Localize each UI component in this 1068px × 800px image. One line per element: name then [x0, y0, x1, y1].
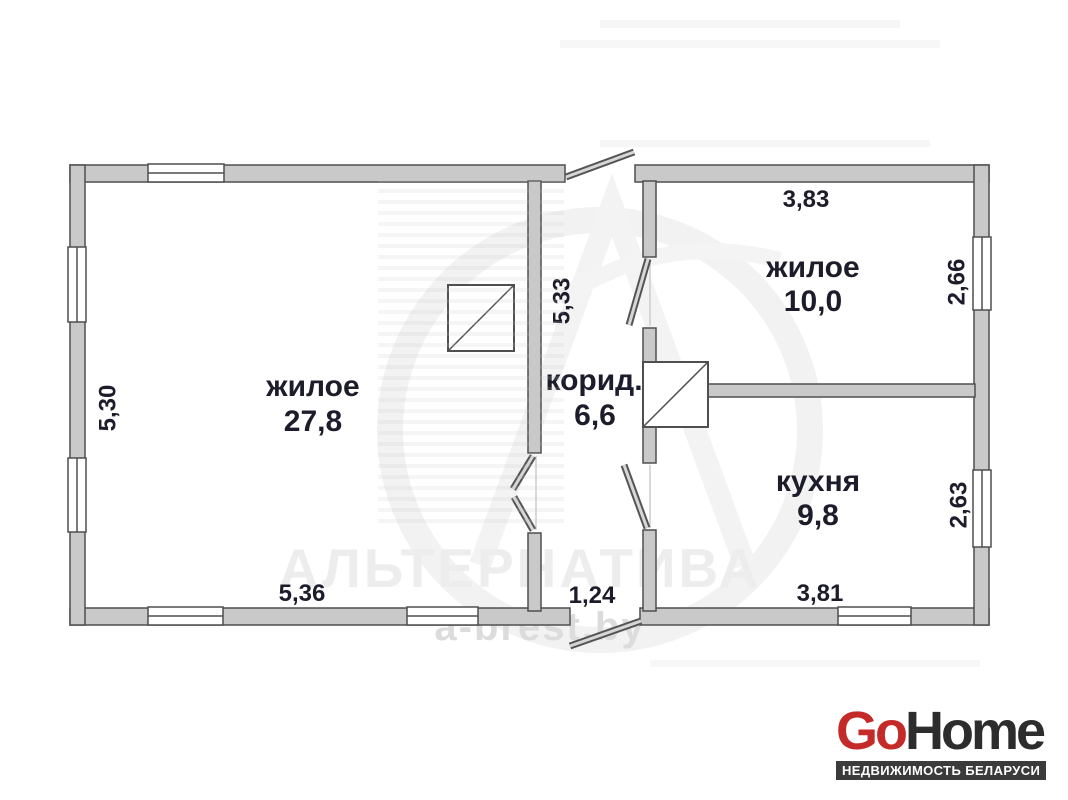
gohome-logo-text: GoHome [836, 704, 1046, 758]
wall-left [70, 165, 85, 625]
corridor-area: 6,6 [574, 399, 616, 432]
wall-bottom-left [70, 608, 570, 625]
scan-streak [600, 20, 900, 28]
dim-corridor-width: 1,24 [569, 582, 616, 609]
wall-corridor-right-2 [643, 328, 656, 363]
dim-kitchen-width: 3,81 [797, 580, 844, 607]
floor-plan-drawing: АЛЬТЕРНАТИВА a-brest.by [0, 0, 1068, 800]
door-leaf-fill [514, 497, 533, 530]
wall-corridor-right-3 [643, 427, 656, 463]
dim-corridor-height: 5,33 [548, 278, 575, 325]
dim-living-height: 5,30 [94, 385, 121, 432]
wall-corridor-right-4 [643, 530, 656, 611]
wall-right [974, 165, 989, 625]
gohome-logo: GoHome НЕДВИЖИМОСТЬ БЕЛАРУСИ [836, 704, 1046, 780]
dim-living-width: 5,36 [279, 580, 326, 607]
living-room-area: 27,8 [284, 405, 342, 438]
wall-bottom-right [640, 608, 989, 625]
dim-kitchen-height: 2,63 [945, 482, 972, 529]
corridor-name: корид. [545, 364, 642, 397]
walls [70, 165, 989, 625]
floorplan-page: АЛЬТЕРНАТИВА a-brest.by [0, 0, 1068, 800]
wall-corridor-right-1 [643, 181, 656, 257]
wall-room-kitchen-divider [705, 384, 975, 397]
room2-name: жилое [765, 251, 859, 284]
dim-room2-height: 2,66 [943, 259, 970, 306]
logo-home-text: Home [905, 701, 1043, 761]
scan-streak [560, 40, 940, 48]
living-room-name: жилое [265, 370, 359, 403]
room2-area: 10,0 [784, 285, 842, 318]
logo-go-text: Go [836, 701, 905, 761]
dim-room2-width: 3,83 [783, 186, 830, 213]
kitchen-area: 9,8 [797, 499, 839, 532]
logo-tagline: НЕДВИЖИМОСТЬ БЕЛАРУСИ [836, 761, 1046, 780]
kitchen-name: кухня [776, 465, 860, 498]
wall-top-right [635, 165, 989, 182]
wall-corridor-left-lower [528, 533, 541, 611]
agency-watermark: АЛЬТЕРНАТИВА a-brest.by [279, 20, 980, 667]
scan-streak [650, 660, 980, 667]
door-leaf-fill [566, 152, 634, 177]
wall-top-left [70, 165, 565, 182]
door-leaf-fill [624, 465, 647, 528]
wall-corridor-left-upper [528, 181, 541, 453]
scan-streak [600, 140, 930, 147]
watermark-agency-name: АЛЬТЕРНАТИВА [279, 537, 761, 599]
